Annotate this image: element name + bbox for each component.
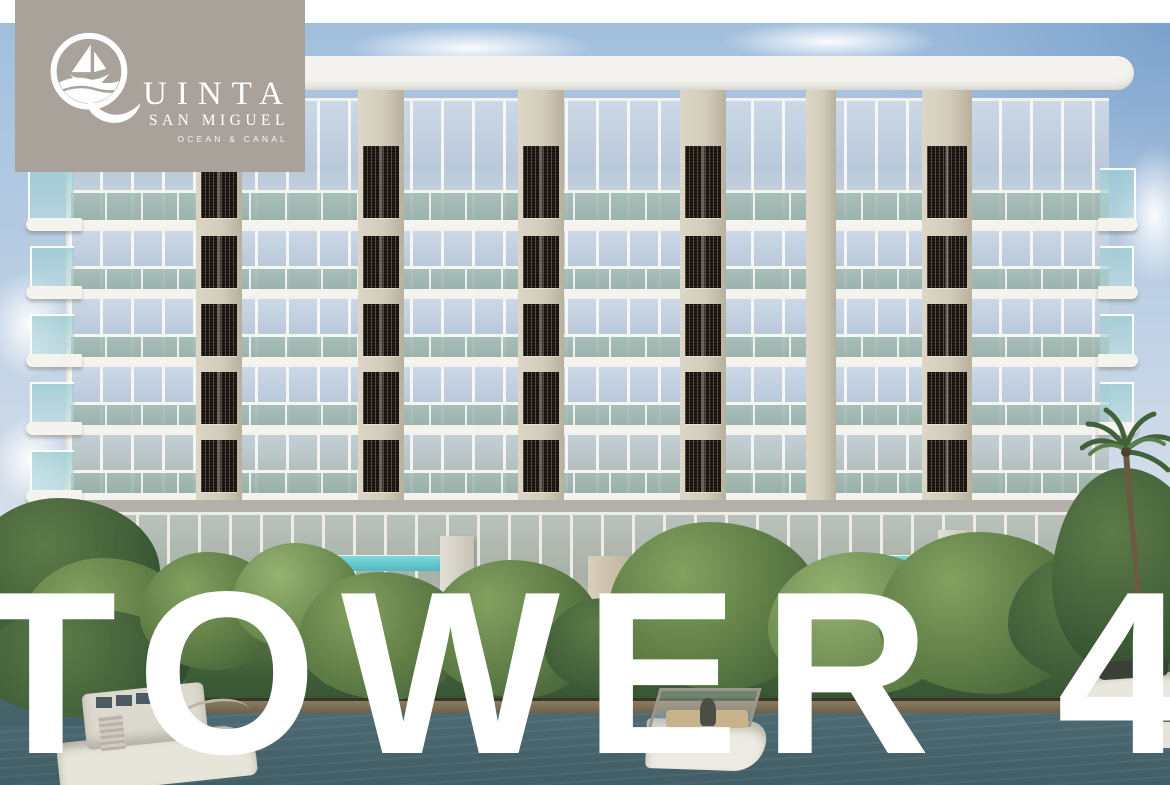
balcony-slab: [26, 218, 82, 231]
lattice-panel: [363, 146, 399, 218]
balcony-slab: [26, 286, 82, 299]
lattice-panel: [201, 304, 237, 356]
brand-subtitle: SAN MIGUEL: [149, 112, 289, 130]
facade-pillar: [680, 90, 726, 502]
balcony-glass-railing: [1100, 168, 1136, 222]
facade-pillar: [358, 90, 404, 502]
brand-logo: UINTA SAN MIGUEL OCEAN & CANAL: [15, 0, 305, 172]
balcony-glass-railing: [30, 246, 74, 290]
lattice-panel: [685, 440, 721, 492]
balcony-glass-railing: [30, 314, 74, 358]
lattice-panel: [363, 236, 399, 288]
top-white-strip: [0, 0, 15, 23]
tower-title: TOWER 4: [0, 558, 1170, 785]
lattice-panel: [523, 372, 559, 424]
lattice-panel: [927, 304, 967, 356]
balcony-slab: [1098, 286, 1138, 299]
lattice-panel: [523, 440, 559, 492]
brand-tagline: OCEAN & CANAL: [177, 134, 288, 144]
lattice-panel: [523, 304, 559, 356]
lattice-panel: [927, 440, 967, 492]
lattice-panel: [685, 304, 721, 356]
lattice-panel: [685, 372, 721, 424]
lattice-panel: [927, 236, 967, 288]
balcony-slab: [1098, 354, 1138, 367]
balcony-slab: [26, 354, 82, 367]
lattice-panel: [927, 146, 967, 218]
lattice-panel: [523, 236, 559, 288]
balcony-slab: [26, 422, 82, 435]
brand-wordmark: UINTA: [143, 76, 293, 113]
lattice-panel: [201, 440, 237, 492]
balcony-glass-railing: [28, 168, 74, 222]
lattice-panel: [363, 440, 399, 492]
balcony-glass-railing: [1100, 246, 1134, 290]
lattice-panel: [523, 146, 559, 218]
rendering-canvas: TOWER 4 UINTA SAN MIGUEL OCEAN & CANAL: [0, 0, 1170, 785]
lattice-panel: [201, 236, 237, 288]
top-white-strip: [305, 0, 1170, 23]
lattice-panel: [927, 372, 967, 424]
lattice-panel: [685, 236, 721, 288]
lattice-panel: [363, 372, 399, 424]
lattice-panel: [685, 146, 721, 218]
lattice-panel: [201, 372, 237, 424]
facade-pillar: [518, 90, 564, 502]
facade-pillar: [806, 90, 836, 502]
facade-pillar: [922, 90, 972, 502]
q-sailboat-logo-icon: [39, 22, 151, 148]
balcony-slab: [1098, 218, 1138, 231]
lattice-panel: [363, 304, 399, 356]
balcony-glass-railing: [1100, 314, 1134, 358]
balcony-glass-railing: [30, 382, 74, 426]
balcony-glass-railing: [30, 450, 74, 494]
